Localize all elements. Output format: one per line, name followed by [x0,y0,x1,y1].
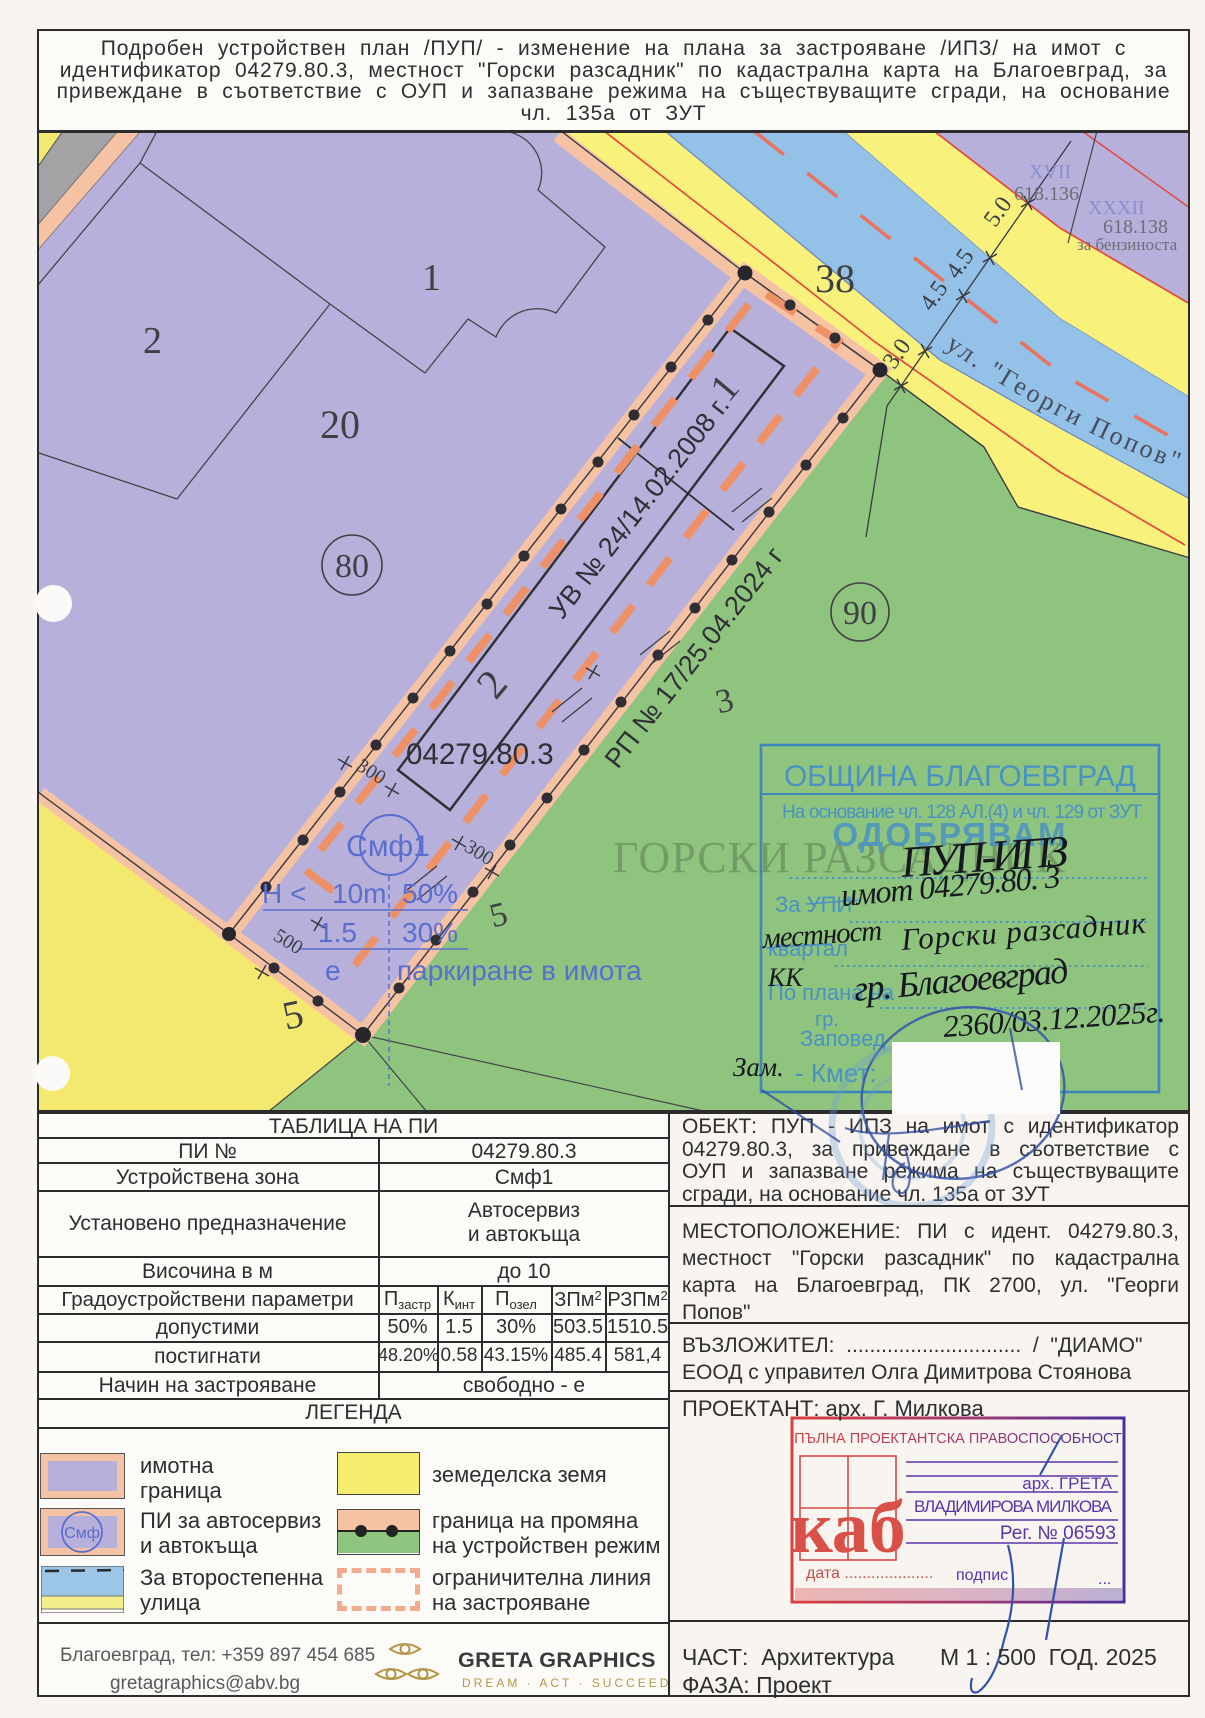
svg-text:е: е [325,955,341,986]
svg-text:КК: КК [767,963,804,992]
svg-text:30%: 30% [402,917,458,948]
svg-text:арх. ГРЕТА: арх. ГРЕТА [1022,1474,1112,1493]
svg-text:80: 80 [335,548,369,585]
svg-text:20: 20 [320,402,360,447]
svg-text:1.5: 1.5 [318,917,357,948]
svg-text:...: ... [1098,1571,1111,1588]
svg-text:2: 2 [143,320,162,362]
svg-text:10m: 10m [332,878,386,909]
svg-text:каб: каб [790,1487,906,1569]
svg-text:Н <: Н < [262,878,306,909]
svg-text:ОБЩИНА БЛАГОЕВГРАД: ОБЩИНА БЛАГОЕВГРАД [784,760,1136,793]
svg-text:Рег. № 06593: Рег. № 06593 [1000,1523,1116,1544]
svg-text:Смф: Смф [64,1525,100,1542]
svg-text:паркиране в имота: паркиране в имота [397,955,642,986]
svg-text:ПЪЛНА ПРОЕКТАНТСКА ПРАВОСПОСОБ: ПЪЛНА ПРОЕКТАНТСКА ПРАВОСПОСОБНОСТ [794,1431,1122,1447]
svg-text:04279.80.3: 04279.80.3 [406,738,554,771]
svg-text:Смф1: Смф1 [346,830,430,863]
svg-text:дата ....................: дата .................... [806,1565,933,1582]
svg-text:1: 1 [422,257,441,299]
svg-text:38: 38 [815,256,855,301]
svg-text:XVII: XVII [1029,161,1071,183]
svg-text:подпис: подпис [956,1567,1008,1584]
svg-text:618.136: 618.136 [1014,183,1079,205]
svg-text:90: 90 [843,595,877,632]
svg-text:за бензиноста: за бензиноста [1077,235,1178,254]
svg-text:ВЛАДИМИРОВА МИЛКОВА: ВЛАДИМИРОВА МИЛКОВА [914,1497,1113,1516]
svg-text:50%: 50% [402,878,458,909]
